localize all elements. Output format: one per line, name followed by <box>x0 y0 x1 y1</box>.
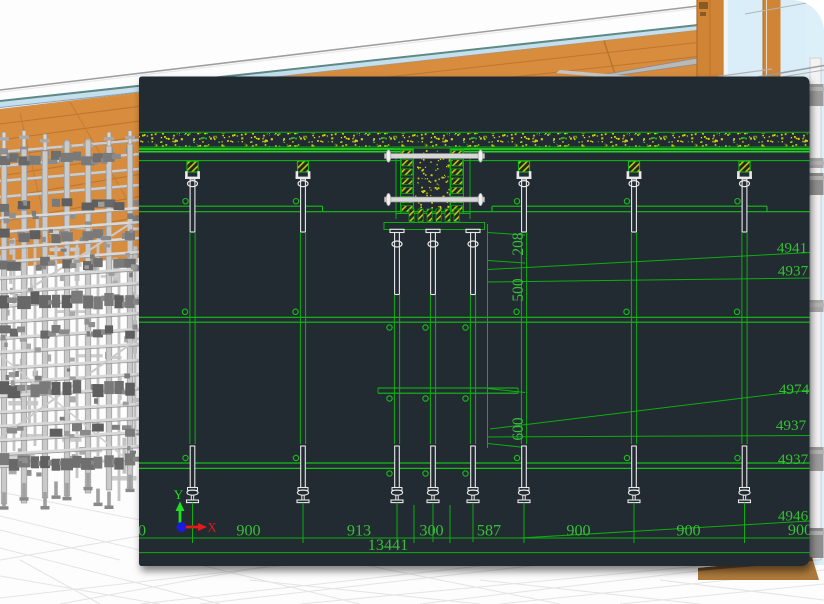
svg-text:500: 500 <box>510 278 527 302</box>
svg-text:X: X <box>207 521 216 535</box>
svg-text:900: 900 <box>676 522 700 540</box>
svg-text:4974: 4974 <box>779 381 810 398</box>
svg-text:Y: Y <box>174 487 184 502</box>
svg-text:13441: 13441 <box>368 536 408 554</box>
svg-text:4937: 4937 <box>778 451 809 468</box>
svg-text:4937: 4937 <box>778 263 809 280</box>
svg-text:300: 300 <box>419 522 443 540</box>
svg-text:900: 900 <box>236 522 260 540</box>
svg-text:900: 900 <box>566 522 590 540</box>
svg-text:4946: 4946 <box>778 508 809 525</box>
svg-text:4937: 4937 <box>776 417 807 434</box>
svg-text:587: 587 <box>477 522 501 540</box>
svg-text:208: 208 <box>510 232 527 256</box>
svg-text:600: 600 <box>510 417 527 441</box>
svg-text:4941: 4941 <box>777 240 807 257</box>
